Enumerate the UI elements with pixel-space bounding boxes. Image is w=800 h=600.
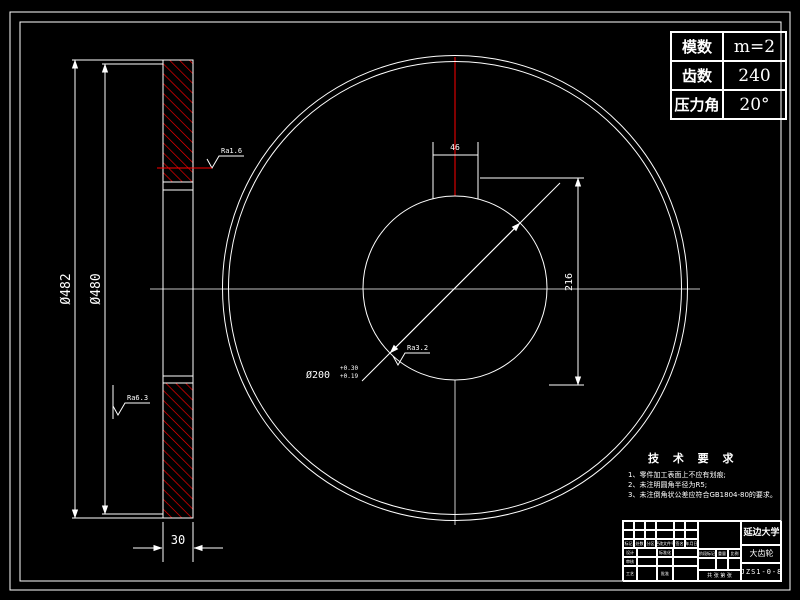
param-label-module: 模数: [671, 32, 723, 61]
tb-cell: [645, 530, 656, 539]
dim-text-bore-tol-upper: +0.30: [340, 365, 358, 372]
tb-cell: [656, 530, 674, 539]
tb-header-date: 年月日: [685, 539, 698, 548]
cad-drawing-sheet: Ø482 Ø480 30 Ra1.6 Ra6.3 46 216: [0, 0, 800, 600]
dim-text-keyway-height: 216: [564, 273, 575, 291]
tech-req-line-1: 1、零件加工表面上不应有划痕;: [628, 470, 784, 480]
tb-cell: [716, 558, 728, 570]
tb-field-sheet: 共 张 第 张: [698, 570, 741, 582]
tech-req-line-2: 2、未注明圆角半径为R5;: [628, 480, 784, 490]
dim-text-pitch-diameter: Ø480: [89, 273, 104, 304]
tech-req-title: 技 术 要 求: [648, 450, 784, 466]
roughness-text-bore: Ra3.2: [407, 344, 428, 352]
dim-text-bore: Ø200: [306, 369, 330, 381]
tb-part-name: 大齿轮: [741, 545, 782, 563]
tb-field-weight: 重量: [716, 549, 728, 558]
tb-header-count: 处数: [634, 539, 645, 548]
tb-header-mark: 标记: [623, 539, 634, 548]
tb-cell: [623, 530, 634, 539]
tb-header-docnum: 更改文件号: [656, 539, 674, 548]
tb-cell: [685, 530, 698, 539]
tb-cell: [728, 558, 741, 570]
dim-text-thickness: 30: [171, 533, 185, 547]
dim-text-outer-diameter: Ø482: [59, 273, 74, 304]
tb-role-approve: 批准: [657, 566, 673, 582]
tb-cell: [674, 521, 685, 530]
tb-cell: [637, 548, 657, 557]
tb-header-zone: 分区: [645, 539, 656, 548]
tb-cell: [637, 557, 657, 566]
tb-cell: [623, 521, 634, 530]
tb-cell: [685, 521, 698, 530]
dim-text-keyway-width: 46: [450, 143, 460, 152]
tb-role-process: 工艺: [623, 566, 637, 582]
tb-cell: [673, 557, 698, 566]
tb-cell: [656, 521, 674, 530]
tb-header-sign: 签名: [674, 539, 685, 548]
tb-cell: [657, 557, 673, 566]
tb-field-scale: 比例: [728, 549, 741, 558]
tb-cell: [634, 530, 645, 539]
roughness-text-web: Ra6.3: [127, 394, 148, 402]
tb-cell: [698, 521, 741, 549]
roughness-symbol-rim: [207, 156, 244, 168]
param-label-teeth: 齿数: [671, 61, 723, 90]
tb-drawing-number: JZS1-0-8: [741, 563, 782, 582]
tb-cell: [637, 566, 657, 582]
gear-parameter-table: 模数 m=2 齿数 240 压力角 20°: [670, 31, 787, 120]
dim-arrows-bore: [390, 223, 520, 353]
roughness-text-rim: Ra1.6: [221, 147, 242, 155]
tb-cell: [673, 566, 698, 582]
tb-role-design: 设计: [623, 548, 637, 557]
param-value-module: m=2: [723, 32, 786, 61]
tb-cell: [673, 548, 698, 557]
param-label-pressure-angle: 压力角: [671, 90, 723, 119]
title-block: 标记 处数 分区 更改文件号 签名 年月日 设计 标准化 审核 工艺 批准 阶段…: [622, 520, 781, 581]
tb-cell: [645, 521, 656, 530]
param-value-pressure-angle: 20°: [723, 90, 786, 119]
tb-role-standardize: 标准化: [657, 548, 673, 557]
param-value-teeth: 240: [723, 61, 786, 90]
hatch-bottom: [163, 383, 193, 518]
tb-role-review: 审核: [623, 557, 637, 566]
tb-cell: [674, 530, 685, 539]
roughness-symbol-web: [113, 403, 150, 415]
technical-requirements: 技 术 要 求 1、零件加工表面上不应有划痕; 2、未注明圆角半径为R5; 3、…: [628, 450, 784, 500]
tb-field-stage: 阶段标记: [698, 549, 716, 558]
tech-req-line-3: 3、未注倒角状公差应符合GB1804-80的要求。: [628, 490, 784, 500]
hatch-top: [163, 60, 193, 182]
tb-company: 延边大学: [741, 521, 782, 545]
roughness-symbol-bore: [393, 353, 430, 365]
tb-cell: [634, 521, 645, 530]
dim-text-bore-tol-lower: +0.19: [340, 373, 358, 380]
tb-cell: [698, 558, 716, 570]
